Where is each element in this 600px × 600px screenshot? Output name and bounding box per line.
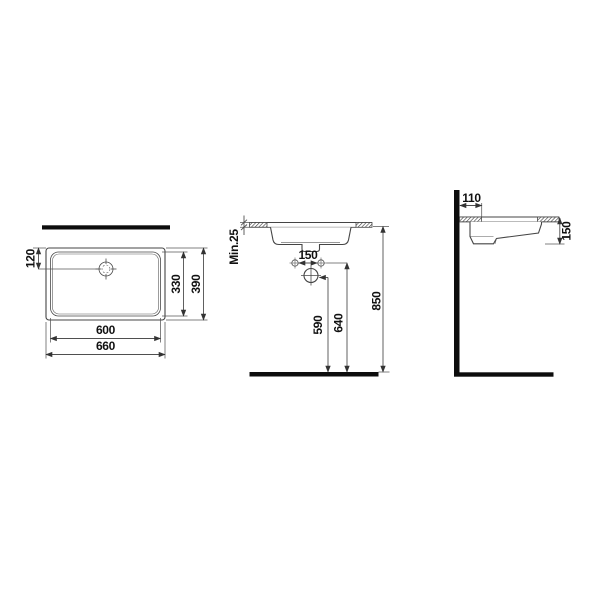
side-view: 110 150 [454, 190, 574, 377]
wall-section-bar [454, 190, 460, 376]
dim-label-drain-offset: 120 [24, 248, 38, 268]
dim-rim-height: 850 [370, 227, 390, 373]
dim-label-rim-height: 850 [370, 291, 384, 311]
dim-hole-spacing: 150 [298, 248, 318, 263]
dim-inner-depth: 330 [162, 252, 188, 316]
dim-label-inner-width: 600 [96, 323, 116, 337]
basin-inner-rim [51, 252, 161, 316]
counter-section-hatch-right [538, 217, 560, 222]
dim-label-hole-height: 640 [332, 313, 346, 333]
counter-section-hatch-right [356, 223, 372, 228]
dim-wall-offset: 110 [460, 191, 482, 217]
dim-label-hole-spacing: 150 [298, 248, 318, 262]
dim-hole-height: 640 [327, 263, 348, 372]
dim-label-drain-height: 590 [311, 315, 325, 335]
dim-label-basin-depth: 150 [560, 221, 574, 241]
tap-hole-symbol [301, 266, 321, 286]
plan-view: 120 330 390 600 660 [24, 225, 208, 358]
dim-label-outer-depth: 390 [189, 274, 203, 294]
dim-label-counter-thickness: Min.25 [227, 229, 241, 265]
floor-section-bar [250, 372, 379, 377]
basin-side-section [470, 222, 542, 244]
counter-section-hatch-left [250, 223, 268, 228]
dim-label-outer-width: 660 [96, 339, 116, 353]
wall-section-bar [42, 225, 170, 229]
dim-drain-height: 590 [311, 278, 328, 373]
front-view: Min.25 150 590 [227, 216, 390, 377]
technical-drawing-canvas: 120 330 390 600 660 [0, 0, 600, 600]
counter-section-hatch-left [460, 217, 482, 222]
floor-section-bar [454, 372, 554, 376]
dim-label-wall-offset: 110 [462, 191, 481, 205]
washbasin-three-view-drawing: 120 330 390 600 660 [0, 0, 600, 600]
dim-label-inner-depth: 330 [169, 274, 183, 294]
